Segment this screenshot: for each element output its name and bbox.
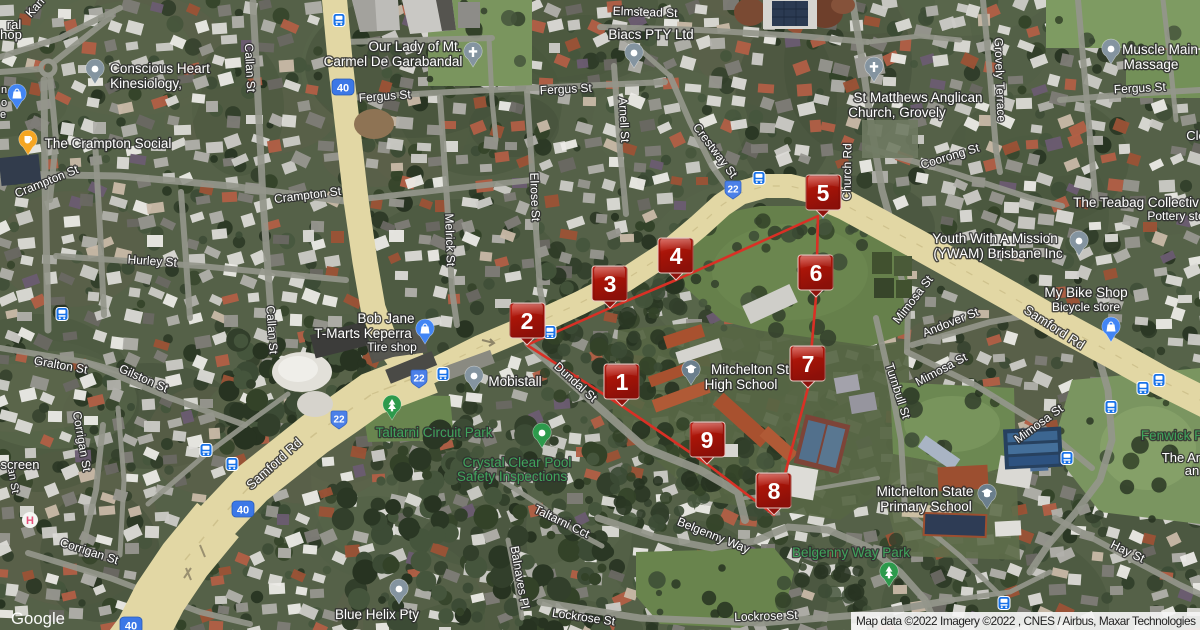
svg-text:Primary School: Primary School — [880, 499, 972, 514]
svg-text:Bicycle store: Bicycle store — [1052, 300, 1120, 314]
svg-text:Blue Helix Pty: Blue Helix Pty — [335, 607, 419, 622]
svg-text:Cle: Cle — [1186, 128, 1200, 143]
svg-text:Muscle Main: Muscle Main — [1122, 42, 1198, 57]
svg-text:o: o — [1, 97, 7, 109]
svg-text:Fergus St: Fergus St — [1113, 80, 1166, 97]
svg-text:The Crampton Social: The Crampton Social — [45, 136, 172, 151]
svg-text:3: 3 — [604, 271, 617, 297]
svg-text:T-Marts Keperra: T-Marts Keperra — [314, 326, 412, 341]
svg-text:Google: Google — [11, 610, 65, 628]
svg-text:Mitchelton State: Mitchelton State — [877, 484, 974, 499]
svg-text:Taltarni Circuit Park: Taltarni Circuit Park — [375, 425, 492, 440]
svg-text:Church Rd: Church Rd — [840, 143, 855, 201]
svg-text:22: 22 — [413, 374, 425, 385]
svg-text:The Teabag Collectiv: The Teabag Collectiv — [1073, 195, 1199, 210]
svg-text:Map data ©2022 Imagery ©2022 ,: Map data ©2022 Imagery ©2022 , CNES / Ai… — [856, 614, 1196, 628]
svg-text:40: 40 — [337, 83, 349, 95]
svg-text:Elrose St: Elrose St — [527, 172, 543, 222]
svg-text:Melrick St: Melrick St — [442, 213, 458, 267]
svg-text:an: an — [1185, 463, 1199, 478]
svg-text:Elmstead St: Elmstead St — [613, 4, 679, 20]
svg-text:Mobistall: Mobistall — [488, 374, 541, 389]
svg-text:High School: High School — [705, 377, 778, 392]
svg-text:(YWAM) Brisbane Inc: (YWAM) Brisbane Inc — [933, 246, 1063, 261]
svg-text:1: 1 — [616, 369, 629, 395]
svg-text:Lockrose St: Lockrose St — [734, 608, 798, 624]
svg-text:8: 8 — [768, 478, 781, 504]
svg-text:Fenwick P: Fenwick P — [1141, 428, 1200, 443]
svg-text:6: 6 — [810, 260, 823, 286]
svg-text:Mitchelton St: Mitchelton St — [711, 362, 789, 377]
svg-text:Grovely Terrace: Grovely Terrace — [992, 37, 1009, 122]
svg-text:22: 22 — [727, 185, 739, 196]
svg-text:e: e — [0, 109, 6, 121]
svg-text:Our Lady of Mt.: Our Lady of Mt. — [368, 39, 461, 54]
svg-text:5: 5 — [817, 180, 830, 206]
svg-text:22: 22 — [333, 415, 345, 426]
svg-text:Tire shop: Tire shop — [367, 340, 417, 354]
svg-text:St Matthews Anglican: St Matthews Anglican — [853, 90, 982, 105]
svg-text:hop: hop — [0, 27, 22, 42]
svg-text:9: 9 — [701, 427, 714, 453]
svg-text:7: 7 — [802, 351, 815, 377]
svg-text:Belgenny Way Park: Belgenny Way Park — [792, 545, 910, 560]
svg-text:Arnell St: Arnell St — [616, 97, 632, 144]
svg-text:Conscious Heart: Conscious Heart — [110, 61, 210, 76]
svg-text:My Bike Shop: My Bike Shop — [1044, 285, 1127, 300]
svg-text:Carmel De Garabandal: Carmel De Garabandal — [324, 54, 463, 69]
svg-text:4: 4 — [670, 243, 683, 269]
svg-text:Pottery sto: Pottery sto — [1147, 209, 1200, 223]
svg-text:Biacs PTY Ltd: Biacs PTY Ltd — [608, 27, 693, 42]
svg-text:Kinesiology,: Kinesiology, — [110, 76, 182, 91]
svg-text:Youth With A Mission: Youth With A Mission — [932, 231, 1058, 246]
svg-text:Safety Inspections: Safety Inspections — [457, 469, 568, 484]
svg-text:Fergus St: Fergus St — [539, 81, 592, 98]
svg-text:40: 40 — [237, 505, 249, 517]
svg-text:2: 2 — [521, 308, 534, 334]
svg-text:Bob Jane: Bob Jane — [357, 311, 414, 326]
svg-text:screen: screen — [0, 457, 39, 472]
svg-text:Church, Grovely: Church, Grovely — [848, 105, 946, 120]
svg-text:H: H — [26, 515, 34, 527]
svg-text:n: n — [1, 84, 7, 96]
svg-text:Crystal Clear Pool: Crystal Clear Pool — [463, 455, 572, 470]
svg-text:Callan St: Callan St — [242, 43, 259, 93]
svg-text:40: 40 — [125, 621, 137, 630]
svg-text:Massage: Massage — [1124, 57, 1179, 72]
